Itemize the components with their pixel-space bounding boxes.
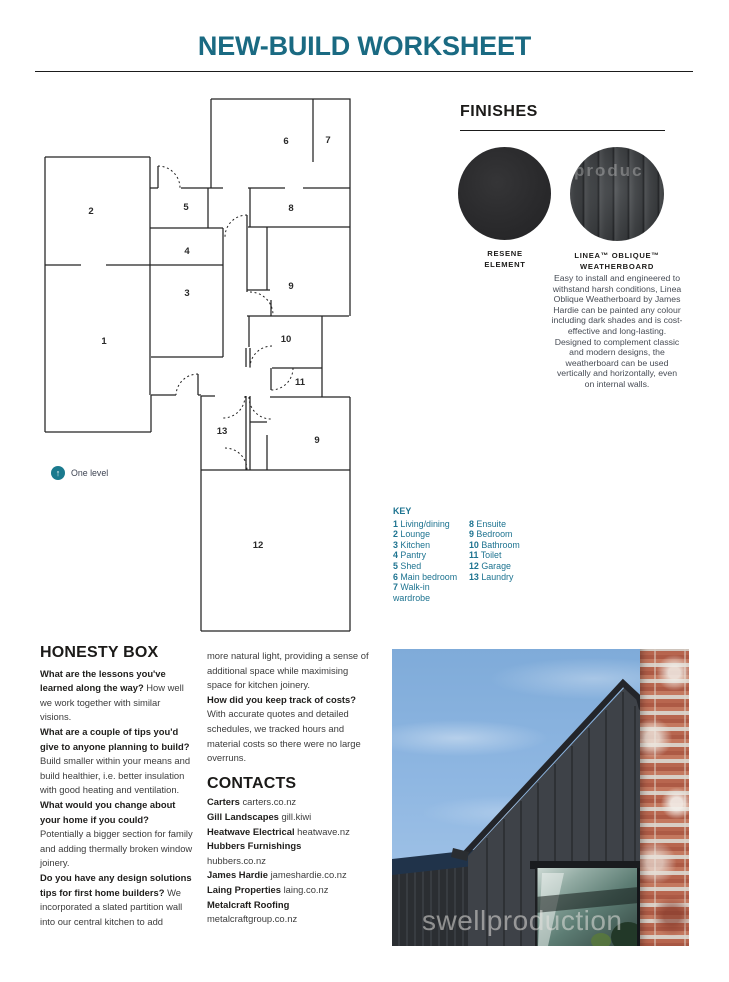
question: What are a couple of tips you'd give to … bbox=[40, 726, 189, 752]
watermark-text: produc bbox=[574, 161, 664, 181]
contacts-heading: CONTACTS bbox=[207, 777, 370, 792]
room-label: 12 bbox=[253, 540, 264, 551]
qa-paragraph: Do you have any design solutions tips fo… bbox=[40, 871, 194, 929]
key-label: Toilet bbox=[481, 550, 502, 560]
swatch-resene-label: RESENE ELEMENT bbox=[446, 248, 564, 270]
brick-pillar bbox=[640, 649, 689, 946]
contact-item: Carters carters.co.nz bbox=[207, 795, 370, 810]
swatch-label-line: LINEA™ OBLIQUE™ bbox=[550, 250, 684, 261]
contact-detail: hubbers.co.nz bbox=[207, 854, 370, 869]
plan-key: KEY 1 Living/dining 2 Lounge 3 Kitchen 4… bbox=[393, 506, 554, 603]
one-level-note: ↑ One level bbox=[51, 466, 108, 480]
room-label: 1 bbox=[101, 336, 107, 347]
room-label: 6 bbox=[283, 136, 288, 147]
key-column-1: 1 Living/dining 2 Lounge 3 Kitchen 4 Pan… bbox=[393, 519, 460, 604]
key-item: 6 Main bedroom bbox=[393, 572, 460, 583]
key-number: 7 bbox=[393, 582, 398, 592]
magazine-page: NEW-BUILD WORKSHEET 1 2 3 4 5 6 7 8 9 10… bbox=[0, 0, 729, 982]
contact-detail: heatwave.nz bbox=[297, 826, 350, 837]
contact-name: James Hardie bbox=[207, 869, 268, 880]
key-heading: KEY bbox=[393, 506, 554, 517]
plan-walls bbox=[45, 99, 350, 631]
key-label: Bedroom bbox=[476, 529, 512, 539]
contact-item: James Hardie jameshardie.co.nz bbox=[207, 868, 370, 883]
answer: Potentially a bigger section for family … bbox=[40, 828, 193, 868]
key-number: 6 bbox=[393, 572, 398, 582]
floor-plan: 1 2 3 4 5 6 7 8 9 10 11 12 13 9 bbox=[38, 93, 360, 638]
key-item: 11 Toilet bbox=[469, 550, 554, 561]
key-label: Lounge bbox=[400, 529, 430, 539]
key-item: 2 Lounge bbox=[393, 529, 460, 540]
up-arrow-icon: ↑ bbox=[51, 466, 65, 480]
photo-watermark: swellproduction bbox=[422, 905, 623, 937]
key-item: 9 Bedroom bbox=[469, 529, 554, 540]
key-label: Pantry bbox=[400, 550, 426, 560]
key-number: 10 bbox=[469, 540, 479, 550]
key-label: Walk-in wardrobe bbox=[393, 582, 430, 603]
key-label: Bathroom bbox=[481, 540, 519, 550]
header-rule bbox=[35, 71, 693, 72]
plan-door-arcs bbox=[158, 166, 293, 470]
honesty-box-heading: HONESTY BOX bbox=[40, 646, 194, 661]
room-label: 10 bbox=[281, 334, 292, 345]
contact-name: Laing Properties bbox=[207, 884, 281, 895]
key-item: 1 Living/dining bbox=[393, 519, 460, 530]
qa-paragraph: What are a couple of tips you'd give to … bbox=[40, 725, 194, 798]
answer: With accurate quotes and detailed schedu… bbox=[207, 708, 361, 763]
key-number: 13 bbox=[469, 572, 479, 582]
room-label: 13 bbox=[217, 426, 228, 437]
room-label: 4 bbox=[184, 246, 190, 257]
key-number: 9 bbox=[469, 529, 474, 539]
answer: Build smaller within your means and buil… bbox=[40, 755, 190, 795]
key-item: 10 Bathroom bbox=[469, 540, 554, 551]
key-item: 5 Shed bbox=[393, 561, 460, 572]
contact-detail: gill.kiwi bbox=[282, 811, 312, 822]
contact-detail: laing.co.nz bbox=[284, 884, 329, 895]
question: What would you change about your home if… bbox=[40, 799, 175, 825]
weatherboard-description: Easy to install and engineered to withst… bbox=[551, 273, 683, 390]
qa-paragraph: How did you keep track of costs? With ac… bbox=[207, 693, 370, 766]
contact-item: Gill Landscapes gill.kiwi bbox=[207, 810, 370, 825]
swatch-label-line: ELEMENT bbox=[446, 259, 564, 270]
contact-detail: carters.co.nz bbox=[242, 796, 296, 807]
key-number: 5 bbox=[393, 561, 398, 571]
contact-item: Metalcraft Roofing metalcraftgroup.co.nz bbox=[207, 898, 370, 927]
key-number: 3 bbox=[393, 540, 398, 550]
finishes-rule bbox=[460, 130, 665, 131]
one-level-label: One level bbox=[71, 468, 108, 478]
contact-item: Heatwave Electrical heatwave.nz bbox=[207, 825, 370, 840]
key-number: 4 bbox=[393, 550, 398, 560]
contact-item: Laing Properties laing.co.nz bbox=[207, 883, 370, 898]
swatch-linea-label: LINEA™ OBLIQUE™ WEATHERBOARD bbox=[550, 250, 684, 272]
room-label: 5 bbox=[183, 202, 189, 213]
key-label: Main bedroom bbox=[400, 572, 457, 582]
qa-paragraph: What are the lessons you've learned alon… bbox=[40, 667, 194, 725]
room-label: 9 bbox=[288, 281, 293, 292]
key-label: Ensuite bbox=[476, 519, 506, 529]
room-label: 3 bbox=[184, 288, 189, 299]
key-number: 11 bbox=[469, 550, 478, 560]
key-number: 2 bbox=[393, 529, 398, 539]
key-label: Shed bbox=[400, 561, 421, 571]
key-item: 13 Laundry bbox=[469, 572, 554, 583]
key-item: 3 Kitchen bbox=[393, 540, 460, 551]
key-label: Living/dining bbox=[400, 519, 449, 529]
key-number: 8 bbox=[469, 519, 474, 529]
swatch-label-line: WEATHERBOARD bbox=[550, 261, 684, 272]
swatch-linea-weatherboard: produc bbox=[570, 147, 664, 241]
honesty-box-column-2: more natural light, providing a sense of… bbox=[207, 649, 370, 927]
room-label: 11 bbox=[295, 377, 306, 388]
key-label: Kitchen bbox=[400, 540, 430, 550]
window-head bbox=[530, 861, 642, 869]
answer: more natural light, providing a sense of… bbox=[207, 650, 369, 690]
qa-paragraph: What would you change about your home if… bbox=[40, 798, 194, 871]
key-label: Laundry bbox=[481, 572, 513, 582]
key-item: 4 Pantry bbox=[393, 550, 460, 561]
contact-name: Hubbers Furnishings bbox=[207, 840, 301, 851]
contact-detail: jameshardie.co.nz bbox=[271, 869, 347, 880]
room-label: 7 bbox=[325, 135, 330, 146]
key-item: 8 Ensuite bbox=[469, 519, 554, 530]
swatch-resene-element bbox=[458, 147, 551, 240]
contact-name: Carters bbox=[207, 796, 240, 807]
key-number: 12 bbox=[469, 561, 479, 571]
key-label: Garage bbox=[481, 561, 511, 571]
contact-item: Hubbers Furnishings hubbers.co.nz bbox=[207, 839, 370, 868]
contact-detail: metalcraftgroup.co.nz bbox=[207, 912, 370, 927]
key-item: 7 Walk-in wardrobe bbox=[393, 582, 460, 603]
key-number: 1 bbox=[393, 519, 398, 529]
qa-paragraph: more natural light, providing a sense of… bbox=[207, 649, 370, 693]
contact-name: Heatwave Electrical bbox=[207, 826, 295, 837]
honesty-box-column-1: HONESTY BOX What are the lessons you've … bbox=[40, 646, 194, 929]
finishes-heading: FINISHES bbox=[460, 103, 538, 121]
key-column-2: 8 Ensuite 9 Bedroom 10 Bathroom 11 Toile… bbox=[469, 519, 554, 604]
page-title: NEW-BUILD WORKSHEET bbox=[0, 31, 729, 62]
room-label: 2 bbox=[88, 206, 93, 217]
swatch-label-line: RESENE bbox=[446, 248, 564, 259]
room-label: 9 bbox=[314, 435, 319, 446]
contact-name: Gill Landscapes bbox=[207, 811, 279, 822]
key-item: 12 Garage bbox=[469, 561, 554, 572]
question: How did you keep track of costs? bbox=[207, 694, 356, 705]
room-label: 8 bbox=[288, 203, 293, 214]
contact-name: Metalcraft Roofing bbox=[207, 899, 289, 910]
house-photo: swellproduction bbox=[392, 649, 689, 946]
